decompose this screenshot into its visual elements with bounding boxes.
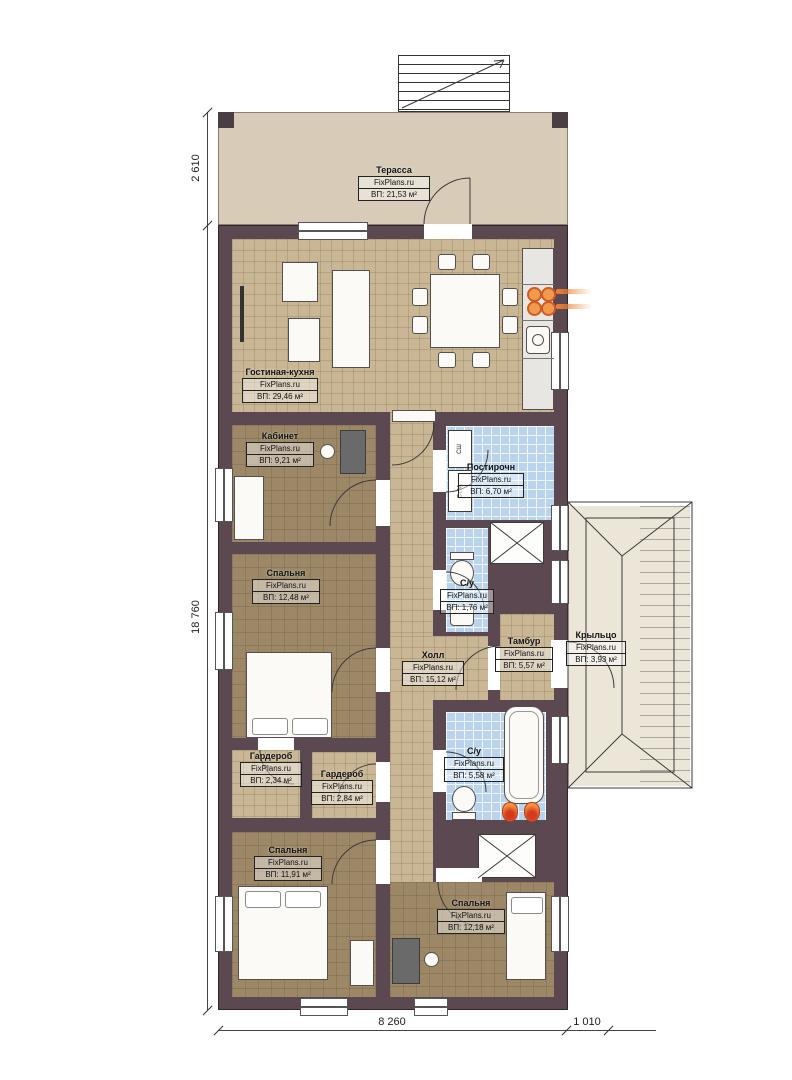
room-label-wc-small: С/у FixPlans.ru ВП: 1,76 м² [440, 578, 494, 614]
dim-porch-width: 1 010 [573, 1016, 601, 1028]
toilet-tank-small [450, 552, 474, 560]
office-sofa [234, 476, 264, 540]
room-info-box: FixPlans.ru ВП: 2,84 м² [311, 780, 373, 805]
porch-roof-hatch [640, 506, 690, 786]
storage-closet-2 [478, 834, 536, 878]
room-area: ВП: 3,93 м² [567, 653, 625, 665]
door-opening-bedroom-left [376, 648, 390, 692]
bed-left [246, 652, 332, 738]
pillow [511, 897, 543, 914]
pillow [292, 718, 328, 735]
exterior-stairs [398, 55, 510, 112]
room-area: ВП: 11,91 м² [255, 868, 321, 880]
armchair [282, 262, 318, 302]
dining-chair [502, 316, 518, 334]
dining-chair [472, 254, 490, 270]
coffee-table [288, 318, 320, 362]
watermark: FixPlans.ru [441, 590, 493, 601]
dining-table [430, 274, 500, 348]
watermark: FixPlans.ru [459, 474, 523, 485]
door-opening-bedroom-bottom-right [436, 868, 482, 882]
room-label-vestibule: Тамбур FixPlans.ru ВП: 5,57 м² [495, 636, 553, 672]
room-area: ВП: 5,57 м² [496, 659, 552, 671]
room-info-box: FixPlans.ru ВП: 1,76 м² [440, 589, 494, 614]
door-opening-bedroom-bottom-left [376, 840, 390, 884]
room-name: Гардероб [311, 769, 373, 779]
room-name: Спальня [254, 845, 322, 855]
room-name: Постирочн [458, 462, 524, 472]
room-label-bedroom-bottom-left: Спальня FixPlans.ru ВП: 11,91 м² [254, 845, 322, 881]
office-desk [340, 430, 366, 474]
stove-burner [527, 287, 542, 302]
watermark: FixPlans.ru [241, 763, 301, 774]
door-opening-wardrobe2 [376, 762, 390, 802]
dresser [350, 940, 374, 986]
counter-divider [522, 358, 554, 359]
room-area: ВП: 5,58 м² [445, 769, 503, 781]
bathtub [504, 706, 544, 804]
room-name: Гардероб [240, 751, 302, 761]
room-info-box: FixPlans.ru ВП: 29,46 м² [242, 378, 318, 403]
room-label-porch: Крыльцо FixPlans.ru ВП: 3,93 м² [566, 630, 626, 666]
room-area: ВП: 15,12 м² [403, 673, 463, 685]
dining-chair [472, 352, 490, 368]
window-bedroom-bottom-left [215, 896, 233, 952]
room-area: ВП: 9,21 м² [247, 454, 313, 466]
room-label-office: Кабинет FixPlans.ru ВП: 9,21 м² [246, 431, 314, 467]
room-info-box: FixPlans.ru ВП: 2,34 м² [240, 762, 302, 787]
dim-terrace-height: 2 610 [190, 154, 202, 182]
stove-burner [527, 301, 542, 316]
room-label-bedroom-bottom-right: Спальня FixPlans.ru ВП: 12,18 м² [437, 898, 505, 934]
room-label-bedroom-left: Спальня FixPlans.ru ВП: 12,48 м² [252, 568, 320, 604]
room-info-box: FixPlans.ru ВП: 12,18 м² [437, 909, 505, 934]
room-area: ВП: 2,34 м² [241, 774, 301, 786]
room-name: Тамбур [495, 636, 553, 646]
dining-chair [438, 352, 456, 368]
room-name: Холл [402, 650, 464, 660]
room-name: С/у [440, 578, 494, 588]
watermark: FixPlans.ru [496, 648, 552, 659]
dining-chair [412, 288, 428, 306]
toilet-bowl-big [452, 786, 476, 812]
toilet-tank-big [452, 812, 476, 820]
terrace-post-right [552, 112, 568, 128]
room-area: ВП: 29,46 м² [243, 390, 317, 402]
room-label-laundry: Постирочн FixPlans.ru ВП: 6,70 м² [458, 462, 524, 498]
room-label-wardrobe2: Гардероб FixPlans.ru ВП: 2,84 м² [311, 769, 373, 805]
room-info-box: FixPlans.ru ВП: 11,91 м² [254, 856, 322, 881]
door-opening-office [376, 480, 390, 526]
watermark: FixPlans.ru [438, 910, 504, 921]
window-bottom-1 [300, 998, 348, 1016]
window-bedroom-left [215, 612, 233, 670]
room-label-wardrobe1: Гардероб FixPlans.ru ВП: 2,34 м² [240, 751, 302, 787]
watermark: FixPlans.ru [359, 177, 429, 188]
room-name: Терасса [358, 165, 430, 175]
room-area: ВП: 12,48 м² [253, 591, 319, 603]
office-chair [320, 444, 335, 459]
counter-divider [522, 284, 554, 285]
pillow [245, 891, 281, 908]
watermark: FixPlans.ru [445, 758, 503, 769]
bed-bottom-left [238, 886, 328, 980]
door-leaf-hall [392, 410, 436, 422]
room-info-box: FixPlans.ru ВП: 5,57 м² [495, 647, 553, 672]
floor-plan-canvas: СШ Ст.М. [0, 0, 792, 1080]
room-info-box: FixPlans.ru ВП: 21,53 м² [358, 176, 430, 201]
room-label-living-kitchen: Гостиная-кухня FixPlans.ru ВП: 29,46 м² [242, 367, 318, 403]
dining-chair [412, 316, 428, 334]
sink-basin [532, 334, 544, 346]
watermark: FixPlans.ru [312, 781, 372, 792]
room-label-wc-big: С/у FixPlans.ru ВП: 5,58 м² [444, 746, 504, 782]
room-label-terrace: Терасса FixPlans.ru ВП: 21,53 м² [358, 165, 430, 201]
bathtub-inner [509, 711, 539, 799]
dryer-label: СШ [457, 444, 463, 454]
dim-house-width: 8 260 [378, 1016, 406, 1028]
window-living-terrace [298, 222, 368, 240]
watermark: FixPlans.ru [247, 443, 313, 454]
room-name: Кабинет [246, 431, 314, 441]
window-wc-big [551, 716, 569, 764]
dimension-line-bottom [218, 1030, 656, 1031]
dining-chair [502, 288, 518, 306]
pillow [285, 891, 321, 908]
room-info-box: FixPlans.ru ВП: 9,21 м² [246, 442, 314, 467]
room-area: ВП: 12,18 м² [438, 921, 504, 933]
room-area: ВП: 6,70 м² [459, 485, 523, 497]
room-area: ВП: 2,84 м² [312, 792, 372, 804]
bed-bottom-right [506, 892, 546, 980]
watermark: FixPlans.ru [255, 857, 321, 868]
desk-bottom-right [392, 938, 420, 984]
watermark: FixPlans.ru [403, 662, 463, 673]
dimension-line-left [207, 112, 208, 1010]
window-kitchen [551, 332, 569, 390]
tv-unit [240, 286, 244, 342]
window-right-small [551, 560, 569, 604]
room-name: Спальня [437, 898, 505, 908]
heat-streak [556, 304, 592, 309]
door-opening-terrace [424, 224, 472, 239]
counter-divider [522, 320, 554, 321]
boiler-flame-icon [524, 802, 540, 822]
room-info-box: FixPlans.ru ВП: 15,12 м² [402, 661, 464, 686]
watermark: FixPlans.ru [567, 642, 625, 653]
heat-streak [556, 289, 592, 294]
room-label-hall: Холл FixPlans.ru ВП: 15,12 м² [402, 650, 464, 686]
room-info-box: FixPlans.ru ВП: 6,70 м² [458, 473, 524, 498]
terrace-post-left [218, 112, 234, 128]
room-info-box: FixPlans.ru ВП: 12,48 м² [252, 579, 320, 604]
room-info-box: FixPlans.ru ВП: 3,93 м² [566, 641, 626, 666]
watermark: FixPlans.ru [243, 379, 317, 390]
room-name: Спальня [252, 568, 320, 578]
room-info-box: FixPlans.ru ВП: 5,58 м² [444, 757, 504, 782]
window-office [215, 468, 233, 522]
window-laundry [551, 505, 569, 551]
stove-burner [541, 301, 556, 316]
storage-closet-1 [490, 522, 544, 564]
dining-chair [438, 254, 456, 270]
room-area: ВП: 1,76 м² [441, 601, 493, 613]
watermark: FixPlans.ru [253, 580, 319, 591]
desk-chair [424, 952, 439, 967]
room-name: Крыльцо [566, 630, 626, 640]
stove-burner [541, 287, 556, 302]
window-bedroom-bottom-right [551, 896, 569, 952]
room-name: Гостиная-кухня [242, 367, 318, 377]
boiler-flame-icon [502, 802, 518, 822]
door-opening-wardrobe1 [258, 738, 294, 750]
pillow [252, 718, 288, 735]
room-name: С/у [444, 746, 504, 756]
sofa [332, 270, 370, 368]
window-bottom-2 [414, 998, 448, 1016]
dim-house-height: 18 760 [190, 600, 202, 634]
room-area: ВП: 21,53 м² [359, 188, 429, 200]
door-opening-laundry [433, 450, 446, 492]
